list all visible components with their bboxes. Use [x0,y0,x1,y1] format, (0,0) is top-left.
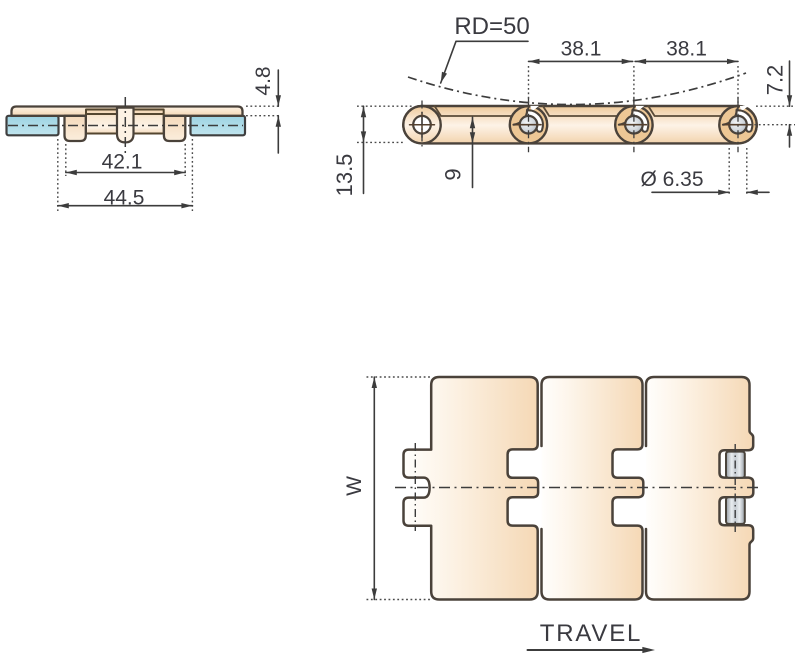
svg-text:42.1: 42.1 [102,151,143,174]
svg-text:38.1: 38.1 [666,38,707,61]
svg-text:Ø 6.35: Ø 6.35 [640,168,703,191]
svg-text:RD=50: RD=50 [454,13,529,40]
svg-text:44.5: 44.5 [104,187,145,210]
svg-text:9: 9 [441,168,466,180]
svg-text:4.8: 4.8 [252,66,275,95]
svg-text:13.5: 13.5 [332,154,357,197]
svg-text:W: W [343,476,366,496]
svg-text:TRAVEL: TRAVEL [540,620,642,647]
svg-text:38.1: 38.1 [561,38,602,61]
svg-text:7.2: 7.2 [763,65,788,96]
